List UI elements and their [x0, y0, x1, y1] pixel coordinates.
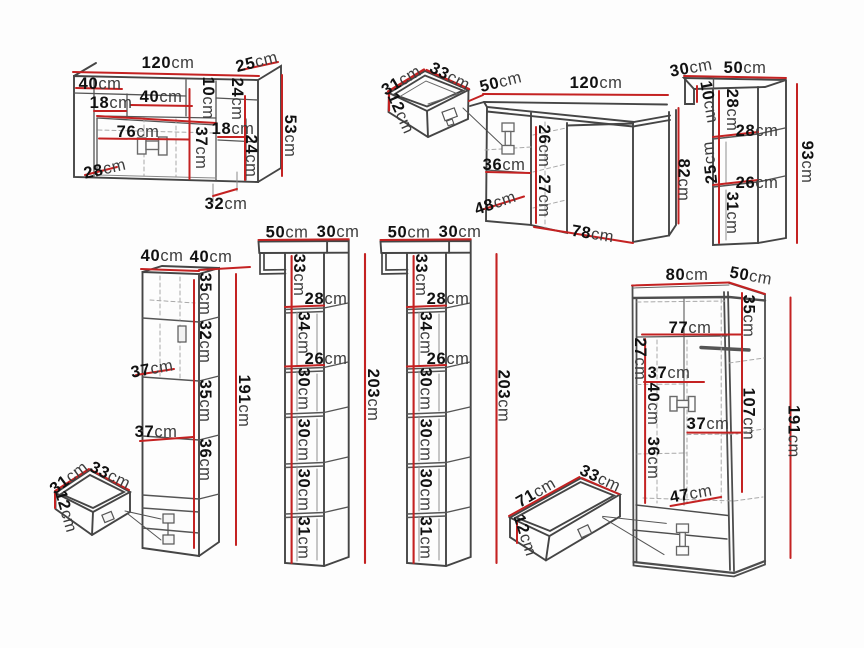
- svg-text:191cm: 191cm: [785, 405, 803, 458]
- svg-text:50cm: 50cm: [724, 59, 767, 77]
- svg-text:34cm: 34cm: [417, 312, 435, 355]
- svg-text:120cm: 120cm: [570, 74, 623, 92]
- svg-text:36cm: 36cm: [483, 156, 526, 174]
- svg-text:12cm: 12cm: [51, 489, 80, 535]
- svg-text:30cm: 30cm: [295, 368, 313, 411]
- svg-text:36cm: 36cm: [644, 437, 662, 480]
- svg-text:28cm: 28cm: [427, 290, 470, 308]
- svg-text:30cm: 30cm: [295, 419, 313, 462]
- svg-text:50cm: 50cm: [478, 68, 524, 96]
- svg-text:50cm: 50cm: [266, 224, 309, 242]
- svg-text:24cm: 24cm: [242, 135, 260, 178]
- svg-text:10cm: 10cm: [696, 80, 721, 125]
- svg-text:30cm: 30cm: [317, 223, 360, 241]
- svg-text:40cm: 40cm: [140, 88, 183, 106]
- svg-text:26cm: 26cm: [535, 125, 553, 168]
- svg-text:77cm: 77cm: [669, 319, 712, 337]
- svg-text:33cm: 33cm: [427, 59, 473, 94]
- svg-text:24cm: 24cm: [228, 78, 246, 121]
- svg-text:191cm: 191cm: [235, 375, 253, 428]
- svg-text:93cm: 93cm: [798, 141, 816, 184]
- svg-text:53cm: 53cm: [281, 115, 299, 158]
- svg-text:30cm: 30cm: [417, 469, 435, 512]
- svg-text:36cm: 36cm: [196, 439, 214, 482]
- svg-text:33cm: 33cm: [87, 458, 133, 493]
- svg-text:48cm: 48cm: [472, 188, 518, 219]
- svg-text:31cm: 31cm: [417, 517, 435, 560]
- svg-text:30cm: 30cm: [295, 469, 313, 512]
- svg-text:107cm: 107cm: [740, 388, 758, 441]
- svg-text:203cm: 203cm: [495, 370, 513, 423]
- svg-text:27cm: 27cm: [535, 175, 553, 218]
- svg-text:37cm: 37cm: [130, 356, 175, 381]
- svg-text:50cm: 50cm: [388, 224, 431, 242]
- svg-text:78cm: 78cm: [570, 222, 615, 246]
- svg-text:203cm: 203cm: [364, 369, 382, 422]
- svg-text:80cm: 80cm: [666, 266, 709, 284]
- svg-text:26cm: 26cm: [305, 350, 348, 368]
- svg-text:35cm: 35cm: [740, 295, 758, 338]
- svg-text:27cm: 27cm: [631, 338, 649, 381]
- svg-text:37cm: 37cm: [687, 415, 730, 433]
- svg-text:30cm: 30cm: [439, 223, 482, 241]
- svg-text:40cm: 40cm: [79, 75, 122, 93]
- svg-text:25cm: 25cm: [699, 140, 721, 184]
- svg-text:40cm: 40cm: [190, 248, 233, 266]
- svg-text:26cm: 26cm: [736, 174, 779, 192]
- svg-text:37cm: 37cm: [135, 423, 178, 441]
- svg-text:26cm: 26cm: [427, 350, 470, 368]
- svg-text:120cm: 120cm: [142, 54, 195, 72]
- svg-text:10cm: 10cm: [199, 77, 217, 120]
- svg-text:32cm: 32cm: [196, 321, 214, 364]
- svg-text:34cm: 34cm: [295, 312, 313, 355]
- svg-text:28cm: 28cm: [736, 122, 779, 140]
- svg-text:30cm: 30cm: [417, 368, 435, 411]
- svg-text:30cm: 30cm: [417, 419, 435, 462]
- svg-text:12cm: 12cm: [510, 512, 540, 558]
- svg-text:31cm: 31cm: [295, 517, 313, 560]
- svg-text:76cm: 76cm: [117, 123, 160, 141]
- svg-text:35cm: 35cm: [196, 273, 214, 316]
- svg-text:28cm: 28cm: [305, 290, 348, 308]
- svg-text:18cm: 18cm: [90, 94, 133, 112]
- svg-text:37cm: 37cm: [648, 364, 691, 382]
- svg-text:31cm: 31cm: [723, 192, 741, 235]
- svg-text:12cm: 12cm: [384, 90, 418, 136]
- svg-text:37cm: 37cm: [192, 127, 210, 170]
- svg-text:40cm: 40cm: [141, 247, 184, 265]
- svg-text:35cm: 35cm: [196, 380, 214, 423]
- svg-text:47cm: 47cm: [669, 481, 714, 506]
- svg-text:82cm: 82cm: [675, 159, 693, 202]
- svg-text:40cm: 40cm: [644, 383, 662, 426]
- svg-text:32cm: 32cm: [205, 195, 248, 213]
